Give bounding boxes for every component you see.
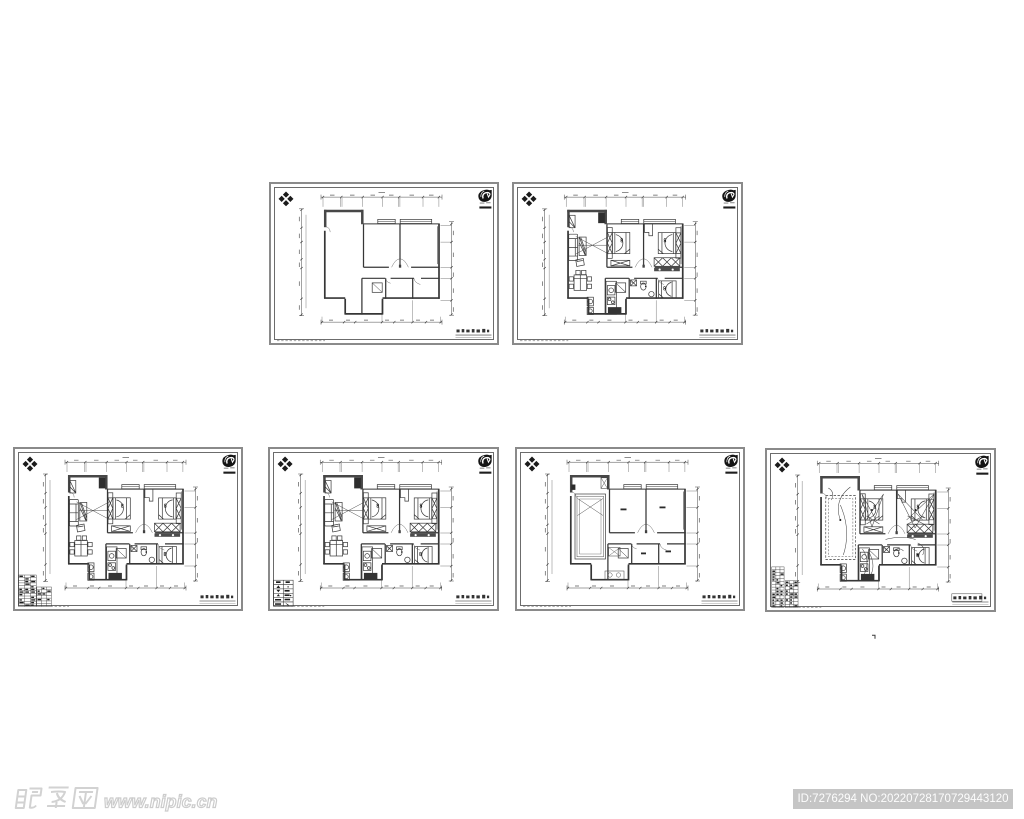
svg-text:www.nipic.cn: www.nipic.cn xyxy=(104,792,218,812)
